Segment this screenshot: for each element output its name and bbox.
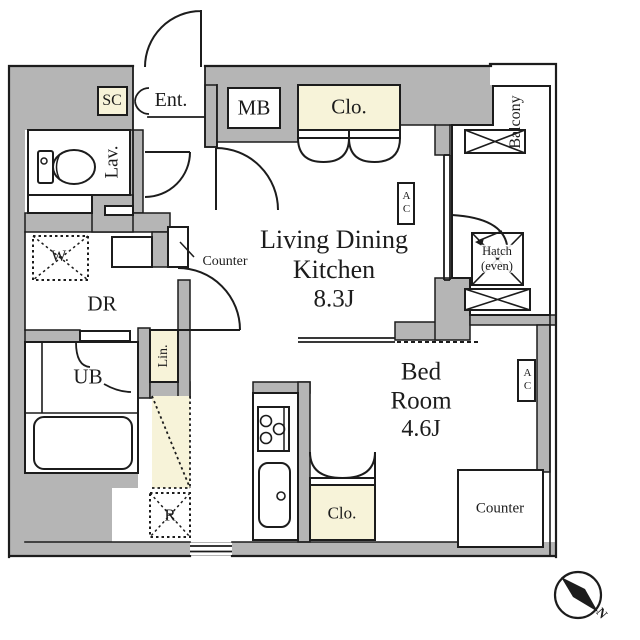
ldk-closet-label: Clo. <box>331 97 367 118</box>
bedroom-label-line1: Bed <box>401 360 441 385</box>
ldk-label-line1: Living Dining <box>260 227 408 253</box>
ldk-window <box>444 155 450 280</box>
hatch-label-line1: Hatch <box>481 245 513 258</box>
bedroom-closet-folding-doors <box>310 452 375 478</box>
lavatory-door <box>145 152 190 197</box>
compass <box>555 572 601 618</box>
ldk-label-line2: Kitchen <box>293 257 375 283</box>
balcony-label: Balcony <box>508 95 524 148</box>
bedroom-sliding-partition <box>298 338 395 342</box>
ac-label-ldk: AC <box>401 190 412 216</box>
bedroom-counter-label: Counter <box>476 502 524 517</box>
shoe-closet-doors <box>135 88 149 114</box>
washer-label: W. <box>51 249 69 265</box>
entrance-door <box>145 10 201 67</box>
bathtub <box>34 417 132 469</box>
hall-ldk-door <box>216 148 278 210</box>
lavatory-label: Lav. <box>103 145 122 178</box>
dressing-room-label: DR <box>87 294 116 315</box>
hatch-label-line2: (even) <box>480 260 514 273</box>
floor-plan: SC Ent. MB Clo. Lav. W. Counter DR Livin… <box>0 0 640 640</box>
wall-niche <box>105 206 133 215</box>
compass-needle <box>561 577 598 612</box>
bedroom-size-label: 4.6J <box>401 417 440 441</box>
ldk-size-label: 8.3J <box>314 287 355 312</box>
sc-label: SC <box>102 93 122 109</box>
bedroom-closet-label: Clo. <box>328 505 357 522</box>
toilet-tank <box>38 151 53 183</box>
meter-box-label: MB <box>238 98 271 119</box>
ldk-counter-label: Counter <box>202 255 247 269</box>
ub-door-opening <box>80 331 130 341</box>
ac-label-bedroom: AC <box>522 367 533 393</box>
unit-bath-label: UB <box>73 367 102 388</box>
floor-plan-drawing <box>0 0 640 640</box>
fridge-label: R <box>164 507 175 524</box>
entrance-label: Ent. <box>155 90 188 110</box>
bedroom-label-line2: Room <box>390 389 451 414</box>
linen-label: Lin. <box>157 345 171 368</box>
washbasin <box>28 195 92 213</box>
dr-counter-box <box>112 237 152 267</box>
